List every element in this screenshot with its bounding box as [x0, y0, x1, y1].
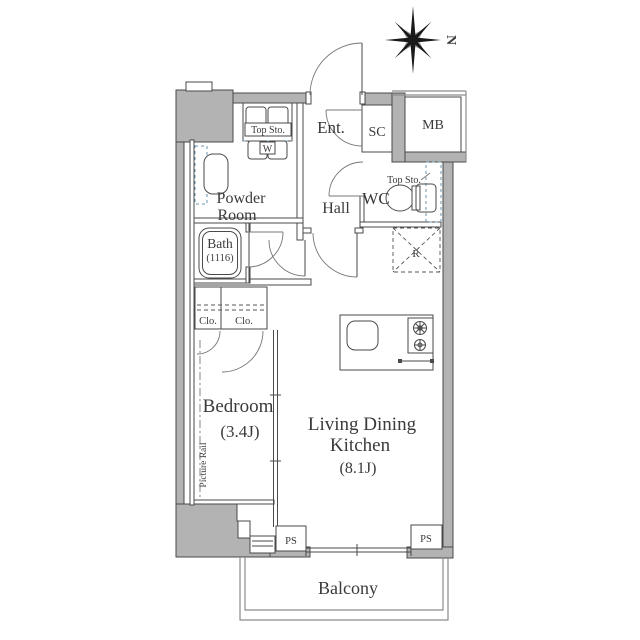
bath-label-1: Bath [207, 236, 233, 251]
floor-plan: N MB SC [0, 0, 640, 640]
laundry-area: Top Sto. W [243, 103, 292, 159]
top-storage-laundry-label: Top Sto. [251, 125, 285, 136]
compass-north-label: N [443, 35, 458, 45]
entrance-label: Ent. [317, 118, 345, 137]
ldk-label-2: Kitchen [330, 435, 391, 456]
hall-label: Hall [322, 200, 350, 217]
bath-label-2: (1116) [206, 253, 234, 264]
toilet-icon [386, 185, 414, 211]
powder-room-label-1: Powder [217, 190, 267, 207]
bath-room: Bath (1116) [194, 223, 305, 283]
ldk-label-3: (8.1J) [340, 460, 377, 477]
balcony: Balcony [240, 557, 448, 620]
bedroom-label-2: (3.4J) [220, 422, 259, 441]
picture-rail-label: Picture Rail [199, 442, 209, 487]
bedroom-bottom-wall [194, 500, 274, 504]
bath-door [248, 232, 283, 267]
sink-icon [204, 154, 228, 194]
powder-room-label-2: Room [217, 207, 257, 224]
ldk-label-1: Living Dining [308, 414, 417, 435]
closet-left-label: Clo. [199, 316, 217, 327]
bedroom: Picture Rail Bedroom (3.4J) [194, 340, 274, 504]
floor-plan-page: N MB SC [0, 0, 640, 640]
wc-door [329, 162, 363, 196]
compass-rose-icon: N [385, 6, 458, 74]
pipe-shaft-left: PS [276, 526, 306, 551]
stove-icon [408, 318, 433, 353]
bedroom-small-window [250, 536, 275, 553]
balcony-label: Balcony [318, 578, 378, 598]
powder-vestibule-door [269, 240, 305, 276]
closet-right-label: Clo. [235, 316, 253, 327]
pipe-shaft-left-label: PS [285, 536, 297, 547]
kitchen-sink-icon [347, 321, 378, 350]
shoe-closet-label: SC [368, 125, 385, 140]
sliding-partition [270, 330, 281, 527]
ldk-window [306, 544, 411, 556]
closets: Clo. Clo. [195, 287, 267, 372]
bedroom-label-1: Bedroom [203, 396, 274, 417]
wc-top-storage [426, 162, 441, 222]
refrigerator-space: R [393, 228, 440, 272]
pipe-shaft-right-label: PS [420, 534, 432, 545]
meter-box-label: MB [422, 118, 444, 133]
ldk-door [313, 233, 357, 277]
bottom-wall-elements: PS PS [238, 521, 442, 556]
top-storage-wc-label: Top Sto. [387, 175, 421, 186]
wall-step [238, 521, 250, 538]
kitchen-counter [340, 315, 434, 370]
refrigerator-label: R [412, 248, 420, 260]
entrance-door [306, 43, 365, 104]
washer-label: W [263, 144, 273, 155]
wc-label: WC [362, 189, 389, 208]
wall-notch [186, 82, 212, 91]
closet-door-right [222, 331, 263, 372]
pipe-shaft-right: PS [411, 525, 442, 549]
